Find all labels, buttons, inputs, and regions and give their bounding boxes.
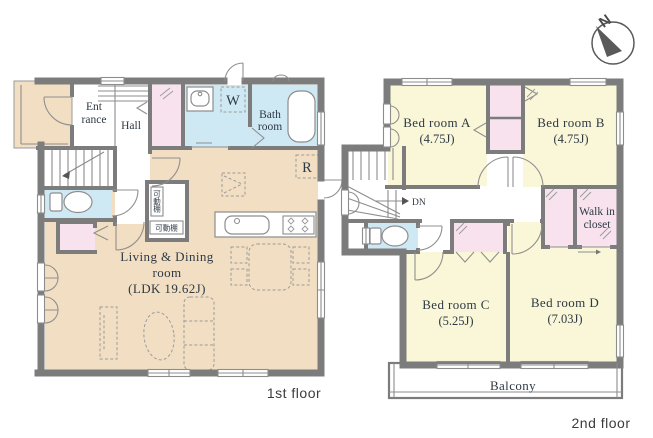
bedroom-a-label-2: (4.75J) [419,132,454,146]
bedroom-b-label-2: (4.75J) [553,132,588,146]
floor-plan-page: R W [0,0,653,438]
floor-plan-drawing: R W [0,0,653,438]
room-closet-c [452,221,505,252]
bathtub-icon [288,91,315,142]
room-closet-b [543,187,575,247]
bedroom-a-label-1: Bed room A [403,115,471,130]
kitchen-counter [215,212,316,237]
washer-label: W [226,93,240,109]
bathroom-label-1: Bath [259,109,281,121]
kitchen-back-door [324,180,342,198]
bedroom-b-label-1: Bed room B [537,115,605,130]
hall-opening-mark [137,102,147,114]
first-floor-plan: R W [14,63,342,401]
bedroom-d-label-1: Bed room D [531,295,599,310]
bathroom-label-2: room [258,121,282,133]
room-storage-1f [58,222,95,252]
room-hall-lower [115,148,150,224]
toilet-icon-1f [50,192,92,213]
kitchen-sink [225,216,269,234]
room-shoe-closet [150,85,183,148]
second-floor-caption: 2nd floor [572,415,631,431]
down-label: DN [412,198,426,208]
ldk-label-3: (LDK 19.62J) [128,281,206,296]
ldk-label-2: room [152,265,181,280]
balcony-label: Balcony [490,378,536,393]
toilet-icon-2f [370,226,408,246]
refrigerator-label: R [302,160,312,176]
bedroom-c-label-2: (5.25J) [438,314,473,328]
bedroom-d-label-2: (7.03J) [547,312,582,326]
entrance-label-2: rance [82,114,107,126]
ldk-label-1: Living & Dining [120,249,213,264]
walk-in-closet-label-1: Walk in [579,206,615,218]
service-door-top [225,63,243,81]
walk-in-closet-label-2: closet [584,219,612,231]
shelf-upper-label: 可動棚 [152,190,161,214]
stairs-arrow-2f [402,197,409,205]
shelf-lower-label: 可動棚 [155,223,178,233]
second-floor-plan: Balcony Bed room A (4.75J) Bed room B (4… [342,79,631,432]
compass: N [592,11,634,64]
vanity-sink-icon [187,87,213,111]
hall-label: Hall [121,120,141,132]
entrance-label-1: Ent [86,101,103,113]
toilet-door-2f [418,226,442,250]
bedroom-c-label-1: Bed room C [422,297,490,312]
first-floor-caption: 1st floor [267,385,321,401]
room-porch [14,81,72,148]
